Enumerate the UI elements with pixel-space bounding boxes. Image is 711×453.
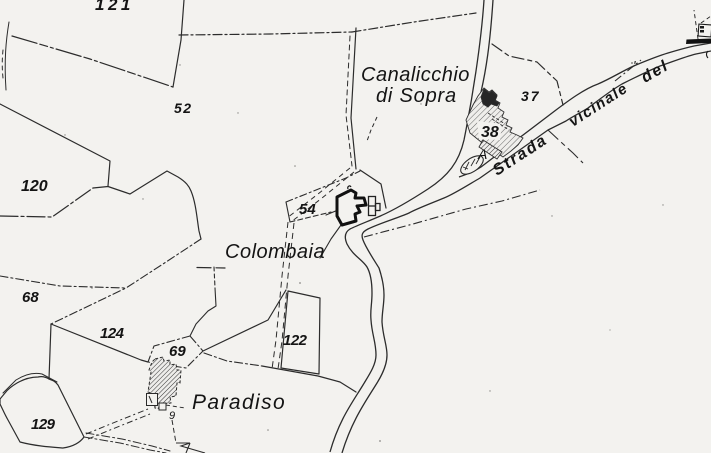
svg-text:54: 54	[299, 201, 316, 218]
svg-text:69: 69	[169, 343, 186, 360]
svg-text:129: 129	[31, 416, 56, 433]
svg-text:A: A	[477, 146, 487, 162]
svg-text:121: 121	[95, 0, 134, 14]
svg-text:68: 68	[22, 289, 39, 306]
svg-text:37: 37	[521, 88, 541, 104]
svg-text:120: 120	[21, 178, 48, 195]
svg-text:Colombaia: Colombaia	[225, 241, 325, 263]
svg-text:122: 122	[283, 332, 308, 349]
svg-text:Canalicchio: Canalicchio	[361, 64, 470, 86]
svg-text:di Sopra: di Sopra	[376, 85, 457, 107]
svg-text:52: 52	[174, 100, 193, 116]
svg-text:124: 124	[100, 325, 125, 342]
svg-text:Paradiso: Paradiso	[192, 391, 286, 414]
svg-text:9: 9	[169, 410, 175, 422]
svg-text:38: 38	[481, 124, 499, 141]
